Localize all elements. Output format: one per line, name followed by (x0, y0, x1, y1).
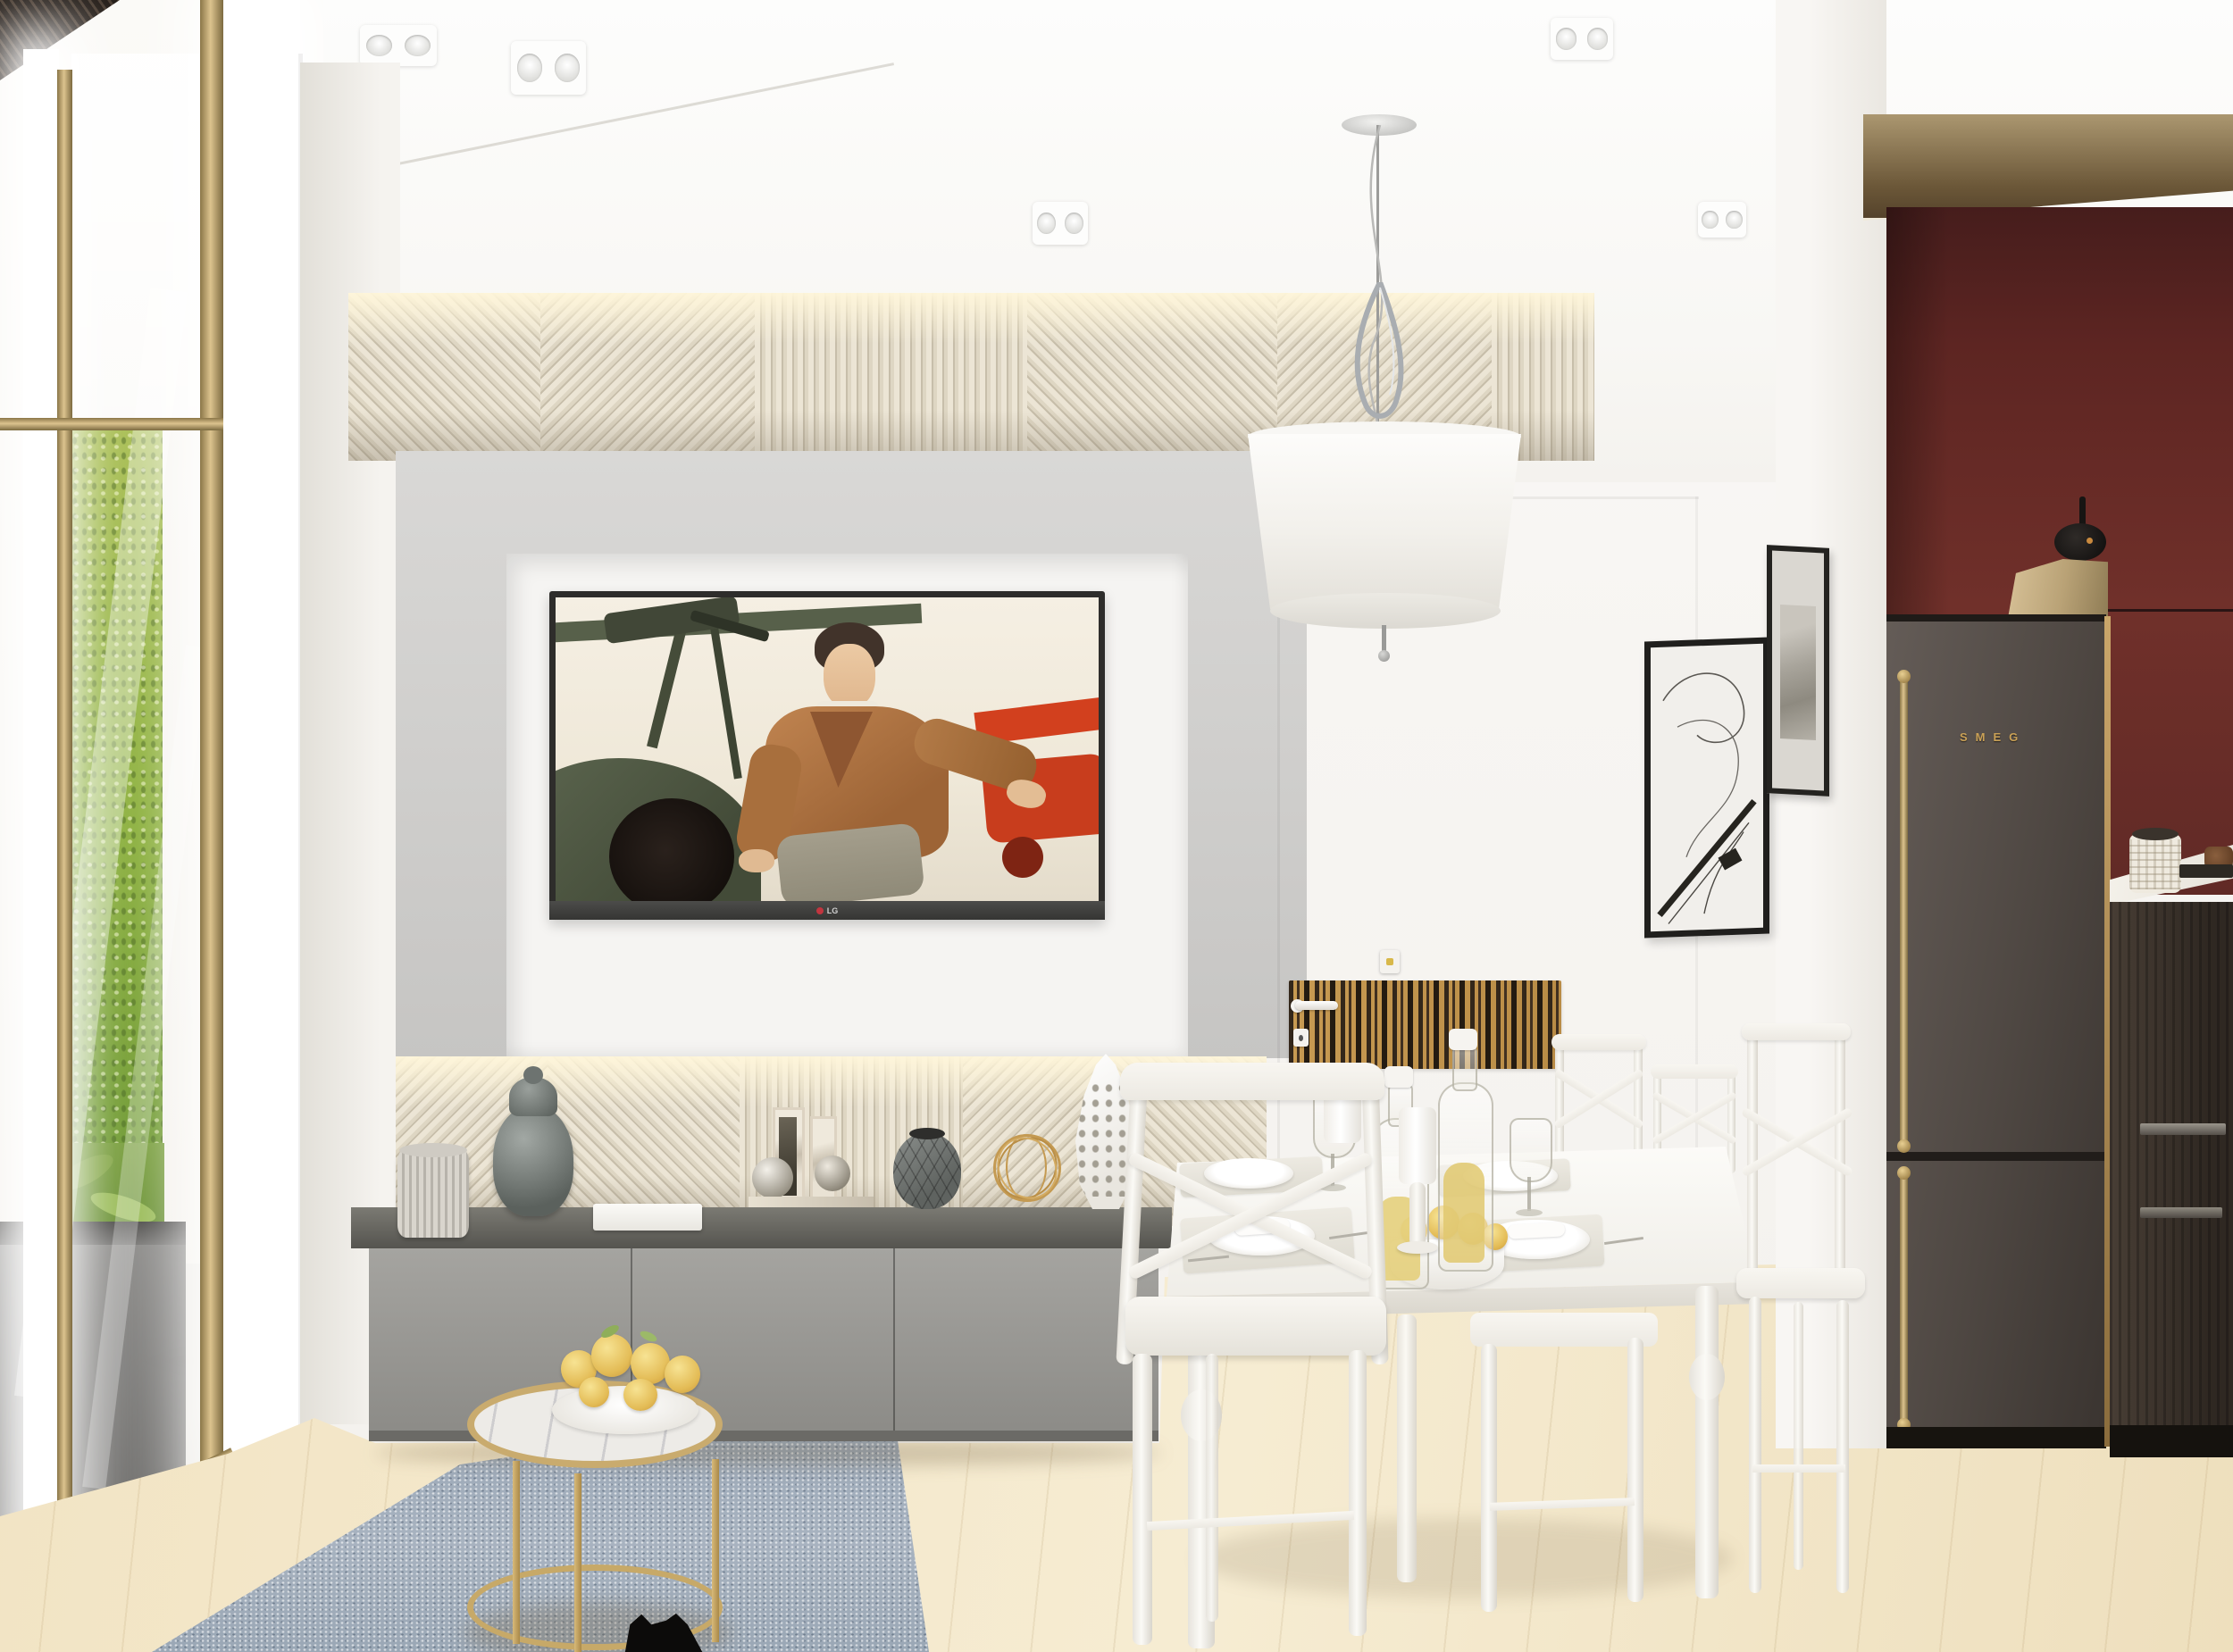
counter-canister (2129, 834, 2181, 893)
canister-pattern (2129, 839, 2181, 889)
canister-lid (2132, 828, 2179, 840)
chair-seat (1125, 1297, 1386, 1356)
fridge-plinth (1886, 1427, 2106, 1448)
spot-lamp (1037, 213, 1056, 235)
spot-lamp (1556, 28, 1577, 49)
spot-lamp (1702, 211, 1718, 229)
artwork-line-art (1651, 644, 1763, 931)
dining-chair-end (1736, 1023, 1870, 1613)
wire-ring (985, 1125, 1070, 1211)
sideboard-top (351, 1207, 1172, 1248)
oil-bottle (1438, 1082, 1493, 1272)
chair-leg (1206, 1354, 1218, 1622)
glass-upper-reflection (71, 54, 202, 420)
recessed-spotlight (360, 25, 437, 66)
pendant-twist-ornament (1349, 282, 1411, 438)
chair-stretcher (1752, 1464, 1845, 1473)
bottle-neck (1452, 1047, 1477, 1091)
handle-finial (1897, 670, 1911, 683)
sconce-light-dot (2087, 538, 2093, 544)
cabinet-handle (2140, 1123, 2226, 1135)
sconce-disc (2054, 523, 2106, 561)
tv: LG (549, 591, 1105, 920)
table-leg (1695, 1286, 1719, 1598)
wine-glass-foot (1516, 1209, 1543, 1216)
coffee-table-leg (513, 1461, 520, 1644)
keyhole (1299, 1035, 1303, 1041)
spot-lamp (517, 54, 543, 81)
biplane-strut (707, 610, 742, 779)
wine-glass-stem (1527, 1177, 1531, 1211)
faceted-vase (893, 1132, 961, 1209)
coffee-table-leg (574, 1473, 581, 1652)
brass-mullion (200, 0, 223, 1576)
chair-stretcher (1147, 1511, 1354, 1531)
man-face (824, 644, 875, 708)
man-hand-left (739, 849, 774, 872)
pendant-shade-drum (1248, 434, 1521, 613)
brass-mullion (57, 70, 72, 1525)
cabinet-plinth (2110, 1425, 2233, 1457)
chair-leg (1794, 1302, 1803, 1570)
ginger-jar-knob (523, 1066, 543, 1084)
table-leg-bulge (1689, 1354, 1725, 1400)
bookend-base (749, 1197, 874, 1207)
chair-leg (1627, 1338, 1643, 1602)
pear (665, 1356, 700, 1393)
dining-chair-far (1551, 1034, 1648, 1168)
artwork-large (1644, 638, 1769, 939)
cabinet-handle (2140, 1207, 2222, 1218)
cabinet-grain (2110, 902, 2233, 1457)
facet-lines (893, 1132, 961, 1209)
recessed-spotlight (1033, 202, 1088, 245)
pear (623, 1379, 657, 1411)
counter-tray (2179, 864, 2233, 878)
chair-leg (1349, 1350, 1367, 1636)
recessed-spotlight (1551, 18, 1613, 60)
ginger-jar-body (493, 1106, 573, 1216)
pear (579, 1377, 609, 1407)
spot-lamp (1587, 28, 1609, 49)
kitchen-rail (2106, 609, 2233, 612)
artwork-small (1767, 545, 1829, 797)
tv-bottom-bezel: LG (549, 901, 1105, 920)
gold-wire-sphere (993, 1134, 1061, 1202)
chair-top-rail (1120, 1063, 1384, 1100)
glass-sphere (815, 1156, 850, 1191)
spot-lamp (1065, 213, 1083, 235)
chair-stile (1555, 1041, 1564, 1168)
light-switch (1380, 950, 1400, 973)
recessed-spotlight (1698, 202, 1746, 238)
bottle-cap (1449, 1029, 1477, 1050)
ribbed-canister (397, 1148, 469, 1238)
napkin (1508, 1222, 1566, 1239)
chair-seat (1736, 1268, 1865, 1298)
handle-finial (1897, 1139, 1911, 1153)
chair-top-rail (1742, 1023, 1851, 1040)
door-handle-lever (1295, 1001, 1338, 1010)
fridge-door-divider (1886, 1152, 2106, 1161)
chair-leg (1133, 1354, 1152, 1645)
recessed-spotlight (511, 41, 586, 95)
chair-leg (1836, 1300, 1849, 1593)
coffee-table-leg (712, 1459, 719, 1642)
window-glow (220, 0, 300, 1518)
fridge: SMEG (1886, 614, 2106, 1448)
lg-logo-dot (816, 907, 824, 914)
pendant-shade-bottom (1270, 593, 1501, 629)
pendant-finial-ball (1378, 650, 1390, 662)
candlestick (1409, 1182, 1426, 1247)
man-trousers (775, 822, 924, 901)
brass-transom (0, 418, 223, 430)
wine-glass-bowl (1510, 1118, 1552, 1182)
artwork-photo (1780, 605, 1816, 740)
interior-render: LG (0, 0, 2233, 1652)
switch-glyph (1386, 958, 1393, 965)
red-biplane-wheel (1002, 837, 1043, 878)
bottle-liquid (1443, 1163, 1484, 1263)
fridge-handle-upper (1900, 677, 1908, 1148)
spot-lamp (405, 35, 431, 56)
zebrano-grain (1289, 980, 1561, 1069)
glass-sphere (752, 1157, 793, 1198)
book (593, 1204, 702, 1231)
faceted-vase-opening (909, 1128, 945, 1139)
chair-stile (1727, 1072, 1735, 1173)
zebrano-door-band (1289, 980, 1561, 1069)
kitchen-cabinets (2110, 902, 2233, 1457)
spot-lamp (1726, 211, 1742, 229)
tv-screen (556, 597, 1099, 901)
dining-chair-near-left (1113, 1059, 1408, 1652)
chair-stile (1747, 1029, 1758, 1282)
lg-logo-text: LG (827, 906, 839, 915)
sideboard-door-seam (893, 1248, 895, 1441)
spot-lamp (366, 35, 392, 56)
fridge-handle-lower (1900, 1173, 1908, 1425)
chair-leg (1481, 1344, 1497, 1612)
ribbed-canister-lid (399, 1143, 467, 1157)
handle-finial (1897, 1166, 1911, 1180)
chair-leg (1749, 1297, 1761, 1593)
chair-top-rail (1551, 1034, 1646, 1050)
chair-top-rail (1651, 1064, 1738, 1079)
pear (591, 1334, 632, 1377)
fridge-brand-logo: SMEG (1960, 730, 2026, 744)
spot-lamp (555, 54, 581, 81)
door-keyhole-plate (1293, 1029, 1309, 1047)
glass-partition (0, 0, 323, 1652)
